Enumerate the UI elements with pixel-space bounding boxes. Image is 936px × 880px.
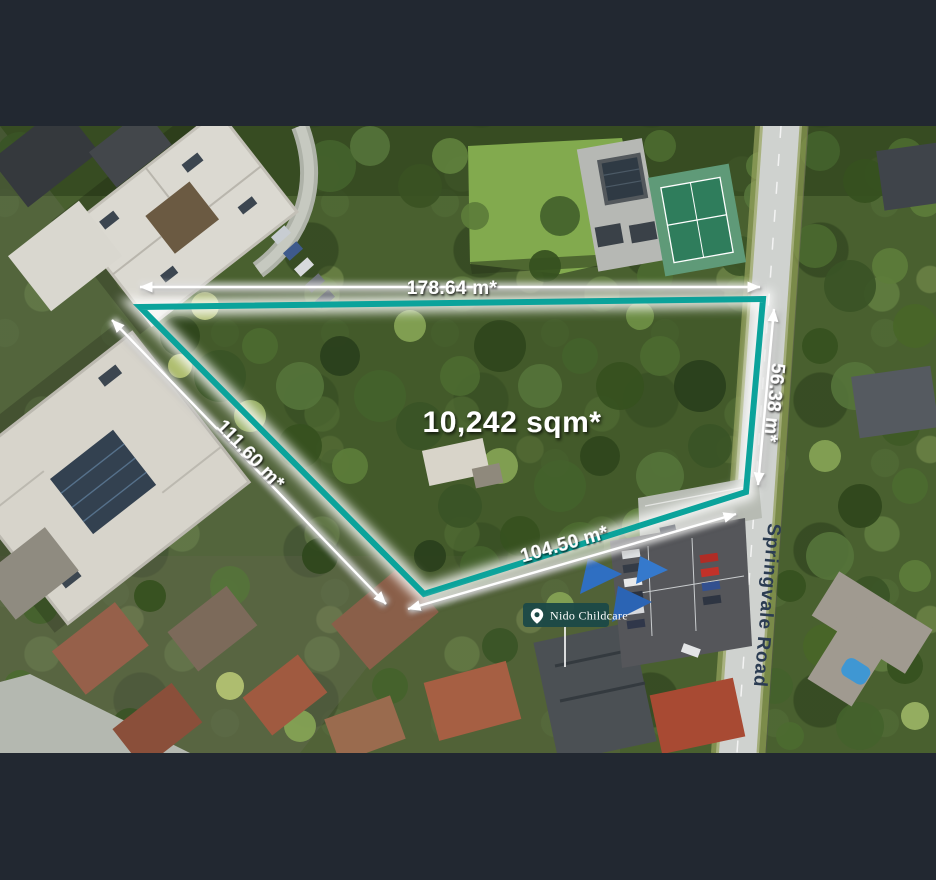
dimension-label-top: 178.64 m* bbox=[407, 278, 498, 299]
area-label: 10,242 sqm* bbox=[423, 406, 602, 439]
letterbox-top bbox=[0, 0, 936, 126]
listing-aerial-image: 178.64 m* 111.60 m* 104.50 m* 56.38 m* 1… bbox=[0, 0, 936, 880]
letterbox-bottom bbox=[0, 753, 936, 880]
marker-label: Nido Childcare bbox=[550, 609, 628, 623]
aerial-photo: 178.64 m* 111.60 m* 104.50 m* 56.38 m* 1… bbox=[0, 126, 936, 753]
tennis-court bbox=[648, 164, 746, 277]
